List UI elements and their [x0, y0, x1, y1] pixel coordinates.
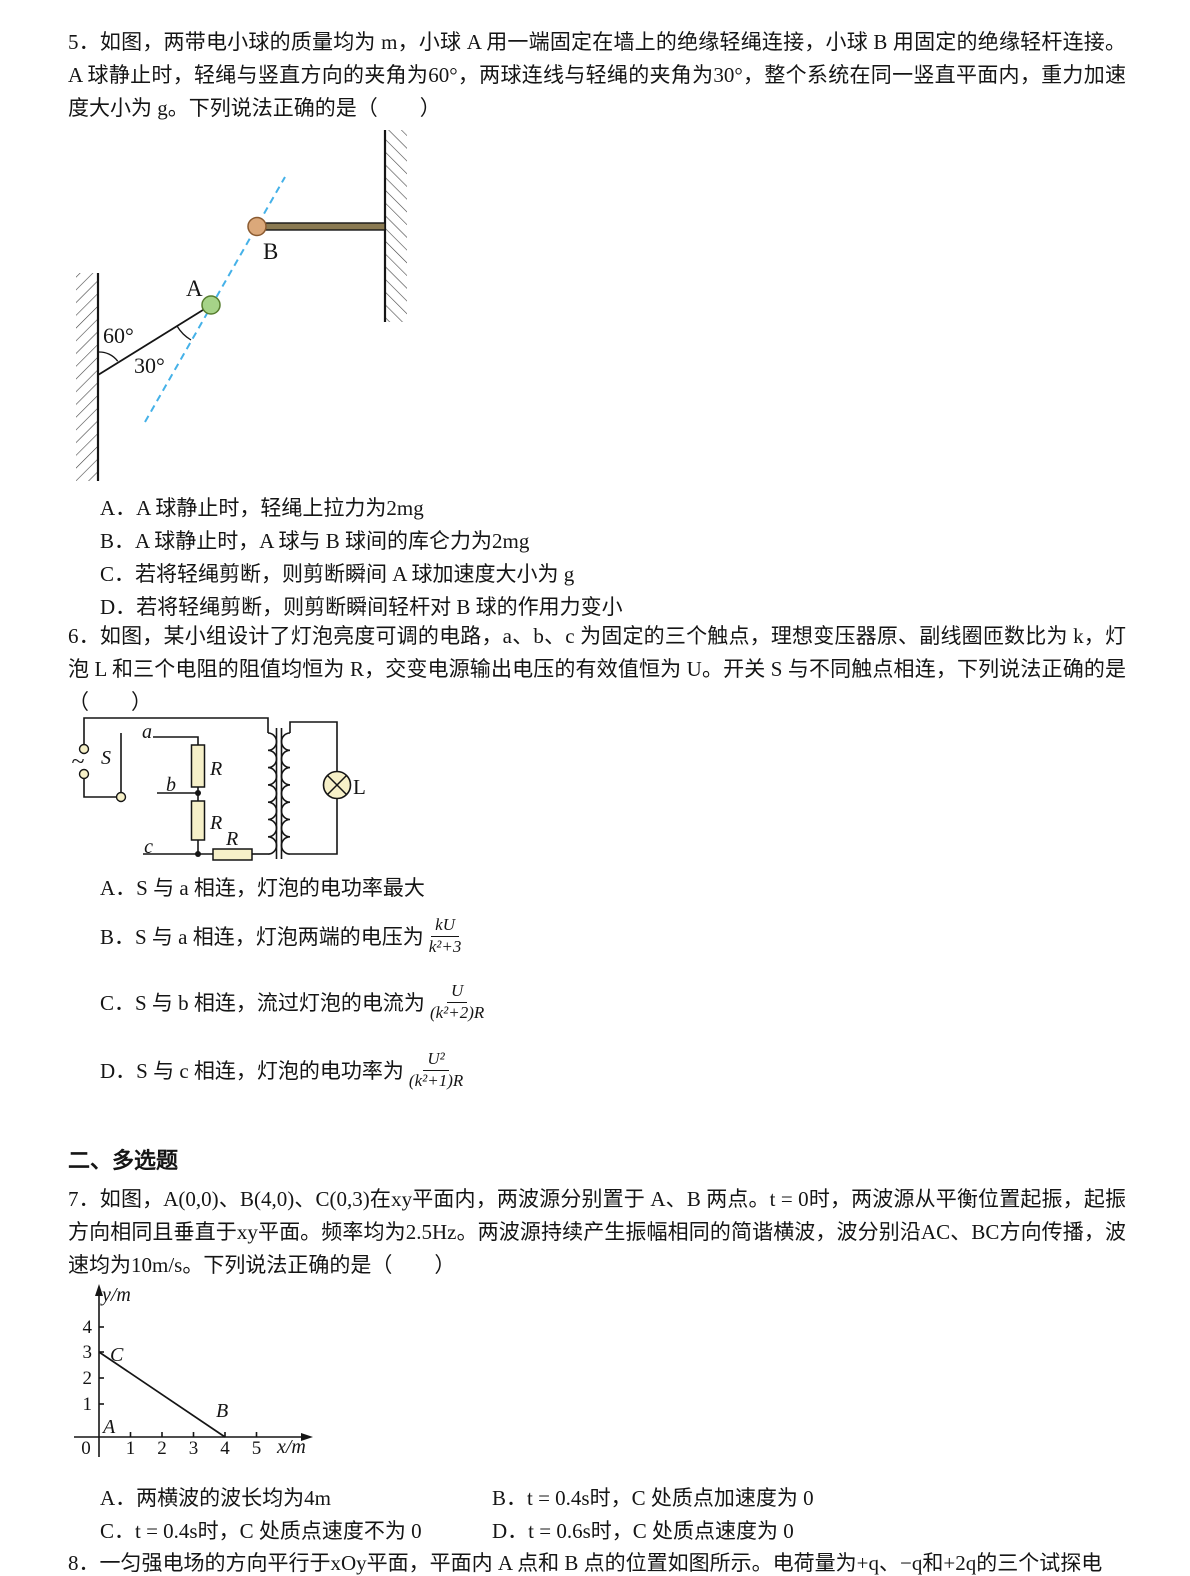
- y-tick: 3: [83, 1342, 93, 1363]
- primary-coil: [268, 733, 277, 854]
- point-a-label: A: [101, 1416, 116, 1438]
- resistor-3-label: R: [225, 828, 238, 850]
- point-c-label: C: [110, 1344, 124, 1366]
- question-6-circuit: ~ S a b c R R R L: [70, 708, 384, 868]
- ac-source-icon: ~: [72, 749, 85, 775]
- fraction: kUk²+3: [427, 915, 464, 956]
- exam-page: 5．如图，两带电小球的质量均为 m，小球 A 用一端固定在墙上的绝缘轻绳连接，小…: [0, 0, 1190, 1576]
- q6-option-b: B．S 与 a 相连，灯泡两端的电压为kUk²+3: [100, 908, 463, 964]
- x-tick: 5: [252, 1438, 262, 1459]
- angle-arc-30: [177, 326, 191, 340]
- y-tick: 4: [83, 1317, 93, 1338]
- y-tick: 1: [83, 1394, 93, 1415]
- fraction: U²(k²+1)R: [407, 1049, 465, 1090]
- angle-60-label: 60°: [103, 323, 134, 348]
- resistor-2-label: R: [209, 812, 222, 834]
- ball-a: [202, 296, 220, 314]
- resistor-1: [192, 745, 205, 787]
- angle-arc-60: [98, 352, 118, 361]
- secondary-coil: [282, 733, 291, 854]
- y-axis-label: y/m: [100, 1284, 131, 1306]
- option-b: B．A 球静止时，A 球与 B 球间的库仑力为2mg: [100, 525, 623, 558]
- x-tick: 3: [189, 1438, 199, 1459]
- right-wall-hatch: [385, 130, 407, 322]
- q6-option-a: A．S 与 a 相连，灯泡的电功率最大: [100, 872, 425, 905]
- ball-a-label: A: [186, 276, 203, 301]
- q6-option-c-text: C．S 与 b 相连，流过灯泡的电流为: [100, 987, 425, 1017]
- point-b-label: B: [216, 1400, 228, 1422]
- x-tick: 2: [157, 1438, 167, 1459]
- resistor-1-label: R: [209, 758, 222, 780]
- y-tick: 2: [83, 1368, 93, 1389]
- node-b: [195, 790, 201, 796]
- question-5-options: A．A 球静止时，轻绳上拉力为2mg B．A 球静止时，A 球与 B 球间的库仑…: [100, 492, 623, 624]
- x-tick: 1: [126, 1438, 136, 1459]
- question-7-text: 7．如图，A(0,0)、B(4,0)、C(0,3)在xy平面内，两波源分别置于 …: [68, 1183, 1126, 1282]
- contact-c-label: c: [144, 836, 153, 858]
- q6-option-d-text: D．S 与 c 相连，灯泡的电功率为: [100, 1055, 404, 1085]
- x-axis-label: x/m: [276, 1436, 306, 1458]
- question-5-text: 5．如图，两带电小球的质量均为 m，小球 A 用一端固定在墙上的绝缘轻绳连接，小…: [68, 26, 1126, 125]
- q6-option-b-text: B．S 与 a 相连，灯泡两端的电压为: [100, 921, 424, 951]
- q7-option-b: B．t = 0.4s时，C 处质点加速度为 0: [492, 1482, 814, 1515]
- origin-label: 0: [81, 1438, 91, 1459]
- switch-pivot: [117, 793, 126, 802]
- left-wall-hatch: [76, 273, 98, 481]
- q6-option-c: C．S 与 b 相连，流过灯泡的电流为U(k²+2)R: [100, 974, 486, 1030]
- node-c: [195, 851, 201, 857]
- x-tick: 4: [220, 1438, 230, 1459]
- question-8-text: 8．一匀强电场的方向平行于xOy平面，平面内 A 点和 B 点的位置如图所示。电…: [68, 1547, 1126, 1576]
- lamp-label: L: [353, 775, 366, 799]
- resistor-3: [213, 849, 252, 860]
- q7-option-c: C．t = 0.4s时，C 处质点速度不为 0: [100, 1515, 422, 1548]
- angle-30-label: 30°: [134, 353, 165, 378]
- rod: [265, 223, 385, 230]
- q7-option-a: A．两横波的波长均为4m: [100, 1482, 331, 1515]
- q6-option-d: D．S 与 c 相连，灯泡的电功率为U²(k²+1)R: [100, 1042, 465, 1098]
- ball-b: [248, 218, 266, 236]
- option-c: C．若将轻绳剪断，则剪断瞬间 A 球加速度大小为 g: [100, 558, 623, 591]
- ball-b-label: B: [263, 239, 278, 264]
- question-5-diagram: A B 60° 30°: [70, 130, 410, 492]
- contact-b-label: b: [166, 774, 176, 796]
- option-a: A．A 球静止时，轻绳上拉力为2mg: [100, 492, 623, 525]
- switch-label: S: [101, 747, 111, 769]
- question-6-text: 6．如图，某小组设计了灯泡亮度可调的电路，a、b、c 为固定的三个触点，理想变压…: [68, 620, 1126, 719]
- q7-option-d: D．t = 0.6s时，C 处质点速度为 0: [492, 1515, 794, 1548]
- fraction: U(k²+2)R: [428, 981, 486, 1022]
- resistor-2: [192, 801, 205, 840]
- contact-a-label: a: [142, 721, 152, 743]
- section-2-title: 二、多选题: [68, 1146, 178, 1176]
- question-7-graph: y/m x/m 0 1 2 3 4 5 1 2 3 4 A B C: [70, 1283, 320, 1463]
